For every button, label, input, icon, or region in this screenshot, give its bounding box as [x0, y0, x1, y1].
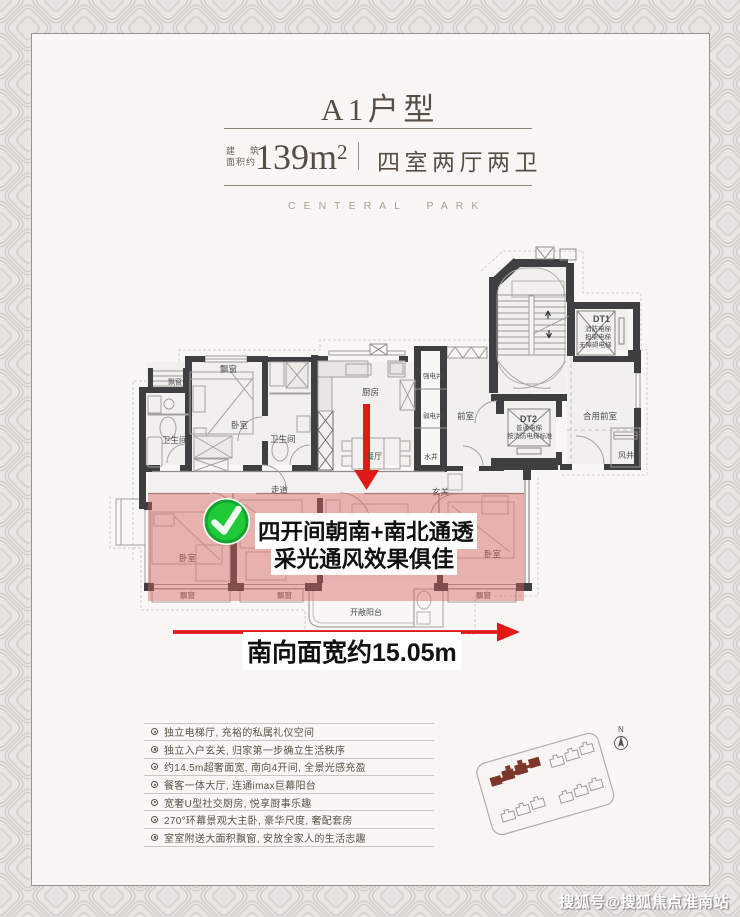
svg-text:合用前室: 合用前室 — [583, 411, 618, 421]
svg-text:卧室: 卧室 — [231, 420, 249, 430]
svg-text:N: N — [618, 725, 624, 734]
svg-text:前室: 前室 — [457, 411, 475, 421]
svg-text:厨房: 厨房 — [362, 387, 379, 397]
svg-text:担架电梯: 担架电梯 — [585, 332, 612, 341]
svg-text:餐厅: 餐厅 — [366, 452, 382, 461]
svg-text:风井: 风井 — [618, 450, 634, 460]
svg-text:卫生间: 卫生间 — [162, 435, 188, 445]
svg-text:卫生间: 卫生间 — [270, 434, 296, 444]
svg-text:按消防电梯标准: 按消防电梯标准 — [507, 431, 553, 440]
svg-text:弱电井: 弱电井 — [423, 411, 443, 420]
svg-text:DT1: DT1 — [593, 314, 610, 324]
svg-text:强电井: 强电井 — [423, 371, 443, 380]
svg-text:无障碍电梯: 无障碍电梯 — [579, 340, 612, 349]
svg-text:飘窗: 飘窗 — [220, 364, 237, 374]
svg-text:普通电梯: 普通电梯 — [516, 423, 543, 432]
svg-text:DT2: DT2 — [520, 414, 537, 424]
svg-text:消防电梯: 消防电梯 — [585, 324, 612, 333]
svg-text:水井: 水井 — [424, 452, 438, 461]
svg-text:开敞阳台: 开敞阳台 — [350, 607, 382, 617]
svg-text:飘窗: 飘窗 — [168, 377, 182, 386]
